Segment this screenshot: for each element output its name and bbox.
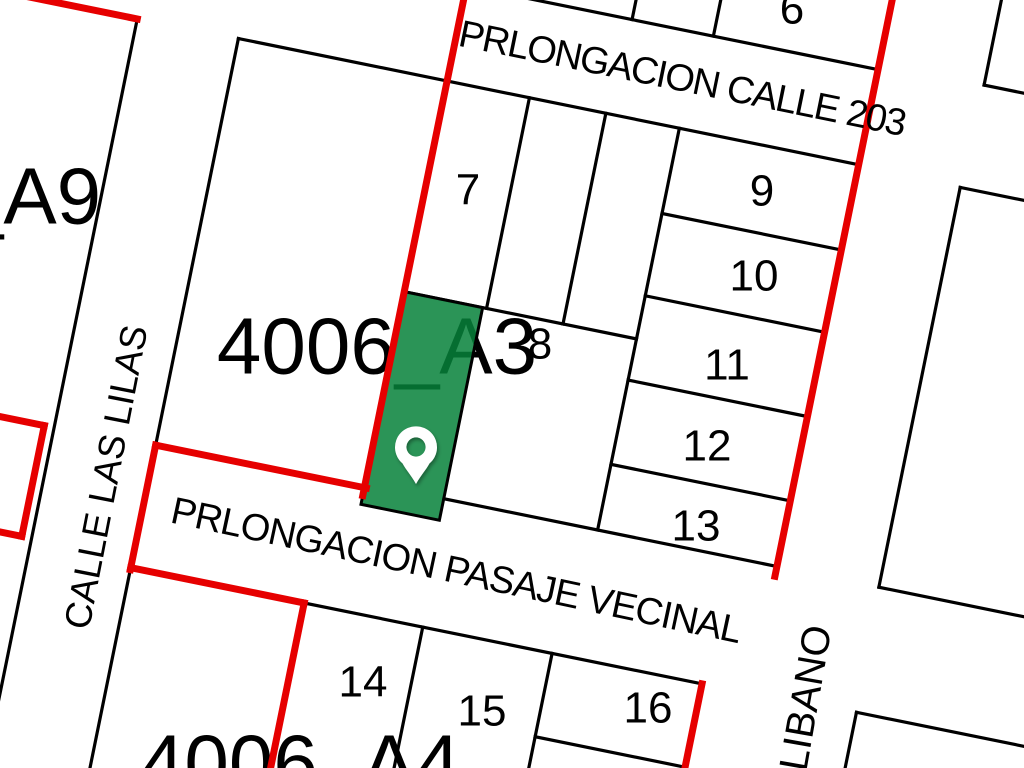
block-label-a4: 4006_A4 xyxy=(140,719,460,768)
parcel-label-14: 14 xyxy=(339,658,388,707)
map-canvas[interactable]: _A9 4006_A3 4006_A4 6 7 8 9 10 11 12 13 … xyxy=(0,0,1024,768)
parcel-label-11: 11 xyxy=(704,341,750,390)
parcel-label-10: 10 xyxy=(730,252,779,301)
parcel-label-6: 6 xyxy=(780,0,804,34)
block-label-a3: 4006_A3 xyxy=(217,302,537,391)
parcel-label-12: 12 xyxy=(683,422,732,471)
parcel-label-7: 7 xyxy=(456,166,480,215)
parcel-label-16: 16 xyxy=(624,684,673,733)
block-label-a9: _A9 xyxy=(0,152,101,241)
parcel-label-13: 13 xyxy=(672,502,721,551)
parcel-label-8: 8 xyxy=(528,320,552,369)
parcel-label-15: 15 xyxy=(458,687,507,736)
parcel-label-9: 9 xyxy=(750,167,774,216)
